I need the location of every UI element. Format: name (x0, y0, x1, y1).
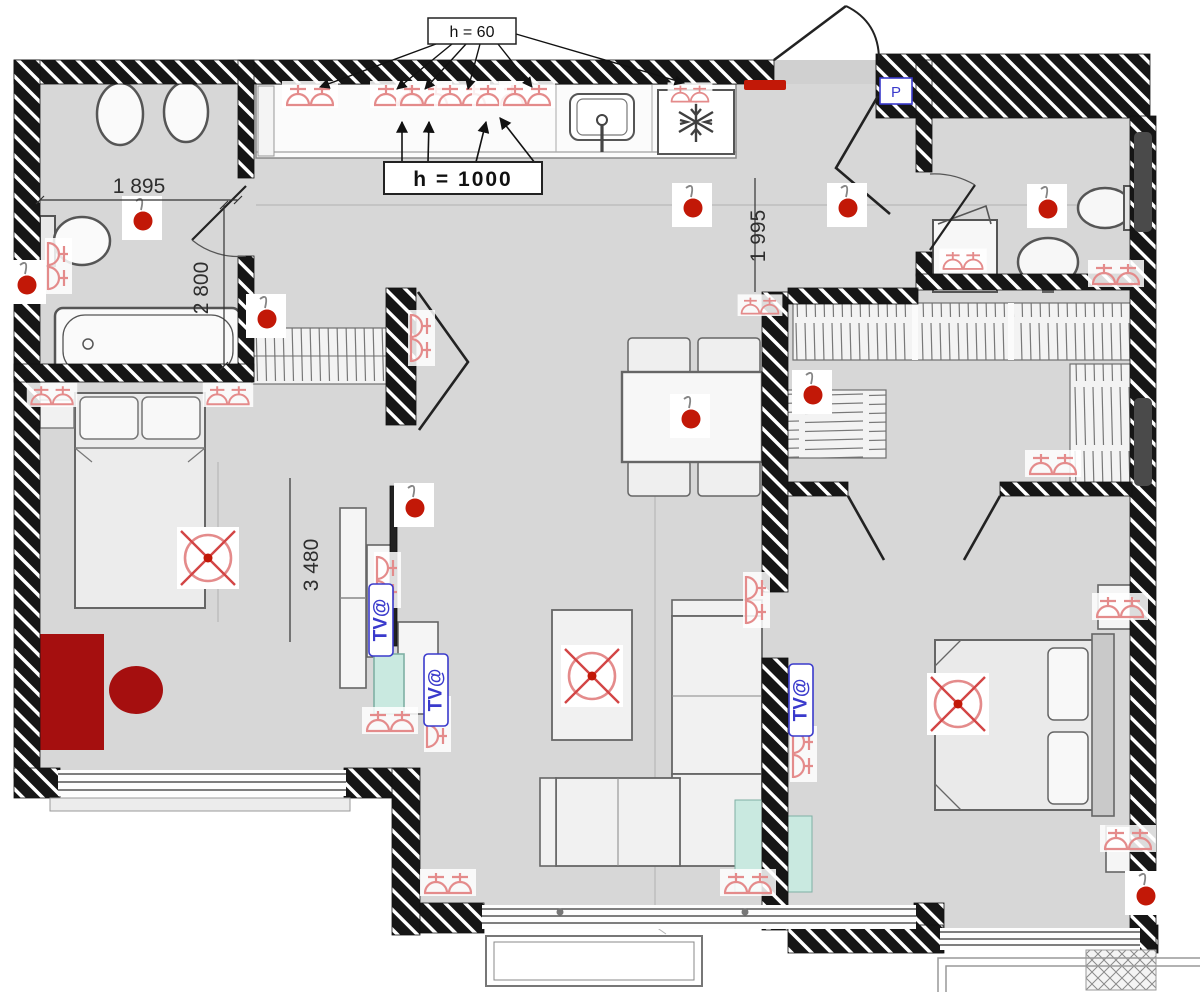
outlet-icon (420, 869, 476, 896)
wall-bathroom2-left-upper (916, 60, 932, 172)
intercom-label: Р (891, 84, 901, 101)
wall-closet-bedroom2-right (1000, 482, 1132, 496)
bedroom1-red-cabinet (38, 634, 104, 750)
entrance-switch-bar (744, 80, 786, 90)
ceiling-light-icon (1027, 184, 1067, 228)
tv-label: TV@ (791, 679, 812, 722)
wall-center-upper (762, 292, 788, 592)
outlet-icon (27, 383, 77, 407)
callout-h60: h = 60 (450, 24, 495, 41)
dim-bathroom-width: 1 895 (113, 175, 166, 198)
wall-hall-closet (788, 288, 918, 304)
ceiling-light-icon (122, 196, 162, 240)
kitchen-tall-cabinet (258, 86, 274, 156)
bathtub-drain (83, 339, 93, 349)
pendant-light-icon (670, 394, 710, 438)
outlet-icon (45, 238, 72, 294)
bedroom2-headboard (1092, 634, 1114, 816)
bedroom1-red-stool (109, 666, 163, 714)
outlet-icon (668, 82, 713, 104)
closet-shelf-divider (1008, 303, 1014, 360)
wall-left (14, 60, 40, 778)
entrance-door-leaf (774, 6, 846, 60)
outlet-icon (1100, 825, 1156, 852)
dim-hall-width: 1 995 (747, 210, 770, 263)
outlet-icon (408, 310, 435, 366)
wall-bottom-living-stub (420, 903, 484, 933)
ceiling-light-icon (246, 294, 286, 338)
pillow (1048, 648, 1088, 720)
entrance-door-swing (846, 6, 879, 60)
outlet-icon (1092, 593, 1148, 620)
chair (698, 460, 760, 496)
outlet-icon (743, 572, 770, 628)
ceiling-light-icon (827, 183, 867, 227)
callout-h1000: h = 1000 (413, 168, 512, 191)
window-ledge (50, 798, 350, 811)
dim-bathroom-depth: 2 800 (190, 262, 213, 315)
outlet-icon (282, 81, 338, 108)
wall-closet-bedroom2-left (788, 482, 848, 496)
ceiling-light-icon (1125, 871, 1165, 915)
ceiling-light-icon (672, 183, 712, 227)
radiator (1134, 132, 1152, 232)
outlet-icon (362, 707, 418, 734)
wall-bottom-left-stub (14, 768, 60, 798)
ceiling-light-icon (394, 483, 434, 527)
wall-bathroom1-right-upper (238, 60, 254, 178)
chandelier-icon (177, 527, 239, 589)
washer-outlet-icon (939, 249, 987, 272)
outlet-icon (499, 81, 555, 108)
floor-plan-canvas: Р TV@ TV@ TV@ 1 895 2 800 3 480 1 995 h … (0, 0, 1200, 993)
outlet-icon (1088, 260, 1144, 287)
floor-plan: Р TV@ TV@ TV@ 1 895 2 800 3 480 1 995 h … (0, 0, 1200, 993)
pillow (142, 397, 200, 439)
balcony-center (486, 936, 702, 986)
radiator (1134, 398, 1152, 486)
chair (698, 338, 760, 374)
bathroom1-sink-left (97, 83, 143, 145)
dim-bedroom1-depth: 3 480 (300, 539, 323, 592)
balcony-sill-hatch (1086, 950, 1156, 990)
intercom-box: Р (880, 78, 912, 104)
wall-top-left (14, 60, 774, 84)
entrance-threshold (774, 60, 878, 84)
outlet-icon (203, 383, 253, 407)
pillow (80, 397, 138, 439)
bathroom1-sink-right (164, 82, 208, 142)
closet-shelving-top (793, 303, 1138, 360)
wall-step (392, 768, 420, 935)
chair (628, 338, 690, 374)
sofa-back-section (672, 616, 762, 774)
ceiling-light-icon (792, 370, 832, 414)
pillow (1048, 732, 1088, 804)
wall-bedroom2-bottom (788, 925, 943, 953)
cabinet-mint (374, 654, 404, 714)
cabinet-mint (786, 816, 812, 892)
closet-shelf-divider (912, 303, 918, 360)
wall-bathroom1-bottom (14, 364, 254, 382)
balcony-right-frame (938, 958, 1200, 992)
chandelier-icon (927, 673, 989, 735)
wall-bathroom2-left-lower (916, 252, 932, 276)
chair (628, 460, 690, 496)
outlet-icon (738, 294, 783, 316)
sofa-armrest (540, 778, 556, 866)
chandelier-icon (561, 645, 623, 707)
window-hinge (557, 909, 564, 916)
tv-label: TV@ (426, 669, 447, 712)
ceiling-light-icon (6, 260, 46, 304)
outlet-icon (1025, 450, 1081, 477)
outlet-icon (720, 869, 776, 896)
window-hinge (742, 909, 749, 916)
tv-label: TV@ (371, 599, 392, 642)
